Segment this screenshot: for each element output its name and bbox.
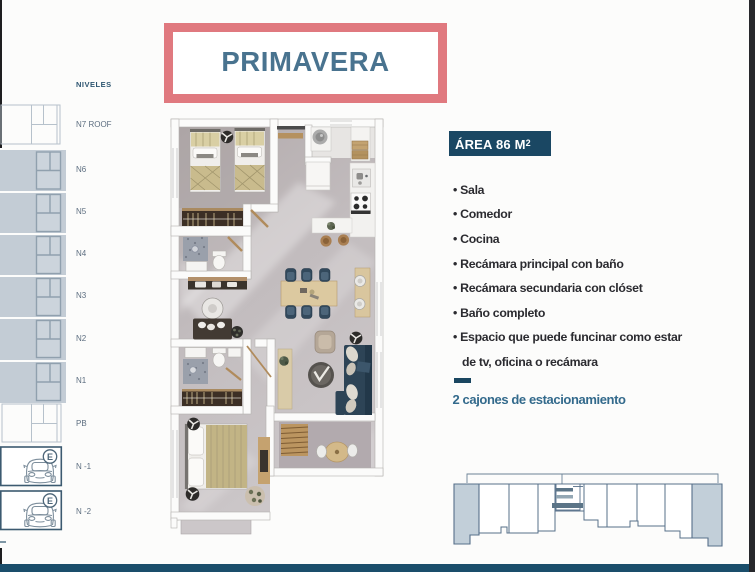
svg-text:E: E [47,452,53,462]
svg-text:E: E [47,496,53,506]
